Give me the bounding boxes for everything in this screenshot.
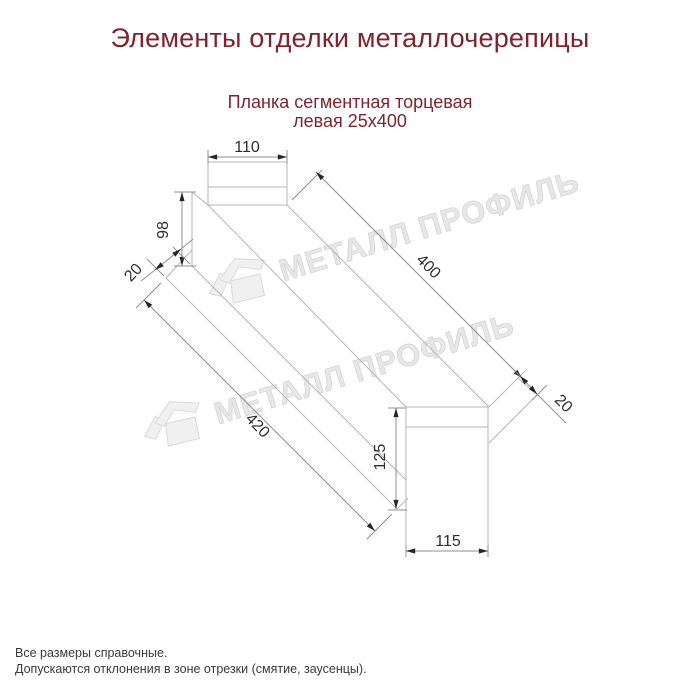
far-hem-edge-1 [489,370,526,407]
dim-label-left-height: 98 [155,221,172,239]
dim-tail [510,366,520,376]
near-end-cap [208,162,287,205]
strip-edge-bottom-outer [166,278,397,509]
technical-drawing: МЕТАЛЛ ПРОФИЛЬ МЕТАЛЛ ПРОФИЛЬ [0,0,700,700]
dim-label-left-hem: 20 [121,261,146,286]
dim-label-right-hem: 20 [551,392,576,417]
far-end-cap [406,407,488,551]
dim-line-right-hem [520,376,537,394]
dim-label-length-top: 400 [413,251,444,282]
footnotes: Все размеры справочные. Допускаются откл… [15,645,367,677]
watermark-upper: МЕТАЛЛ ПРОФИЛЬ [202,156,584,311]
metall-profil-logo-icon [202,251,274,311]
near-top-edge [192,192,208,205]
dim-line-left-hem [155,249,181,270]
far-hem-edge-2 [489,395,537,443]
dim-label-top-width: 110 [234,139,260,156]
ext-line [292,170,322,200]
near-hem-end-edge [166,250,192,278]
dim-label-right-height: 125 [372,444,389,471]
far-hem-end-edge [518,378,537,395]
dim-tail [181,239,193,249]
page: Элементы отделки металлочерепицы Планка … [0,0,700,700]
dim-label-bottom-width: 115 [435,533,461,550]
footnote-line1: Все размеры справочные. [15,645,367,661]
footnote-line2: Допускаются отклонения в зоне отрезки (с… [15,661,367,677]
watermark-lower: МЕТАЛЛ ПРОФИЛЬ [137,299,519,454]
metall-profil-logo-icon [137,394,209,454]
ext-line [147,259,164,276]
